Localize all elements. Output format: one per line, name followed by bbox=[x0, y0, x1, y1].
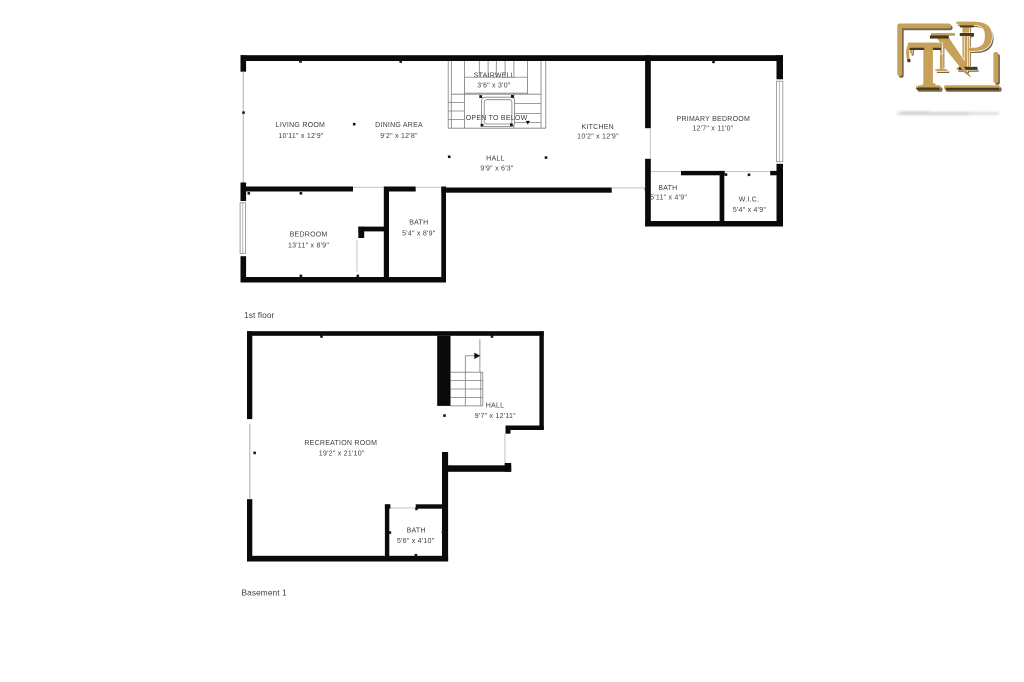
svg-text:BATH: BATH bbox=[409, 219, 428, 226]
svg-text:19'2" x 21'10": 19'2" x 21'10" bbox=[319, 451, 365, 458]
svg-text:13'11" x 8'9": 13'11" x 8'9" bbox=[288, 243, 329, 250]
svg-text:HALL: HALL bbox=[486, 155, 505, 162]
svg-text:5'4" x 4'9": 5'4" x 4'9" bbox=[733, 207, 767, 214]
svg-text:BATH: BATH bbox=[658, 185, 677, 192]
svg-text:LIVING ROOM: LIVING ROOM bbox=[276, 122, 325, 129]
svg-text:5'6" x 4'10": 5'6" x 4'10" bbox=[397, 538, 435, 545]
svg-text:5'4" x 8'9": 5'4" x 8'9" bbox=[402, 231, 436, 238]
svg-text:OPEN TO BELOW: OPEN TO BELOW bbox=[466, 115, 528, 122]
svg-text:Basement 1: Basement 1 bbox=[242, 587, 288, 597]
svg-text:KITCHEN: KITCHEN bbox=[581, 124, 613, 131]
svg-text:STAIRWELL: STAIRWELL bbox=[474, 72, 515, 79]
svg-text:BATH: BATH bbox=[407, 527, 426, 534]
svg-text:3'6" x 3'0": 3'6" x 3'0" bbox=[477, 82, 511, 89]
svg-text:5'11" x 4'9": 5'11" x 4'9" bbox=[650, 194, 687, 201]
svg-text:BEDROOM: BEDROOM bbox=[290, 231, 328, 238]
svg-text:9'9" x 6'3": 9'9" x 6'3" bbox=[480, 165, 514, 172]
svg-text:PRIMARY BEDROOM: PRIMARY BEDROOM bbox=[677, 116, 751, 123]
svg-text:DINING AREA: DINING AREA bbox=[375, 122, 423, 129]
svg-text:12'7" x 11'0": 12'7" x 11'0" bbox=[692, 126, 733, 133]
svg-text:10'11" x 12'9": 10'11" x 12'9" bbox=[278, 133, 324, 140]
svg-text:1st floor: 1st floor bbox=[244, 310, 275, 320]
svg-text:9'2" x 12'8": 9'2" x 12'8" bbox=[380, 133, 418, 140]
svg-text:9'7" x 12'11": 9'7" x 12'11" bbox=[475, 413, 516, 420]
svg-text:W.I.C.: W.I.C. bbox=[739, 197, 760, 204]
svg-text:HALL: HALL bbox=[486, 403, 505, 410]
svg-text:RECREATION ROOM: RECREATION ROOM bbox=[304, 440, 377, 447]
svg-text:10'2" x 12'9": 10'2" x 12'9" bbox=[577, 134, 619, 141]
